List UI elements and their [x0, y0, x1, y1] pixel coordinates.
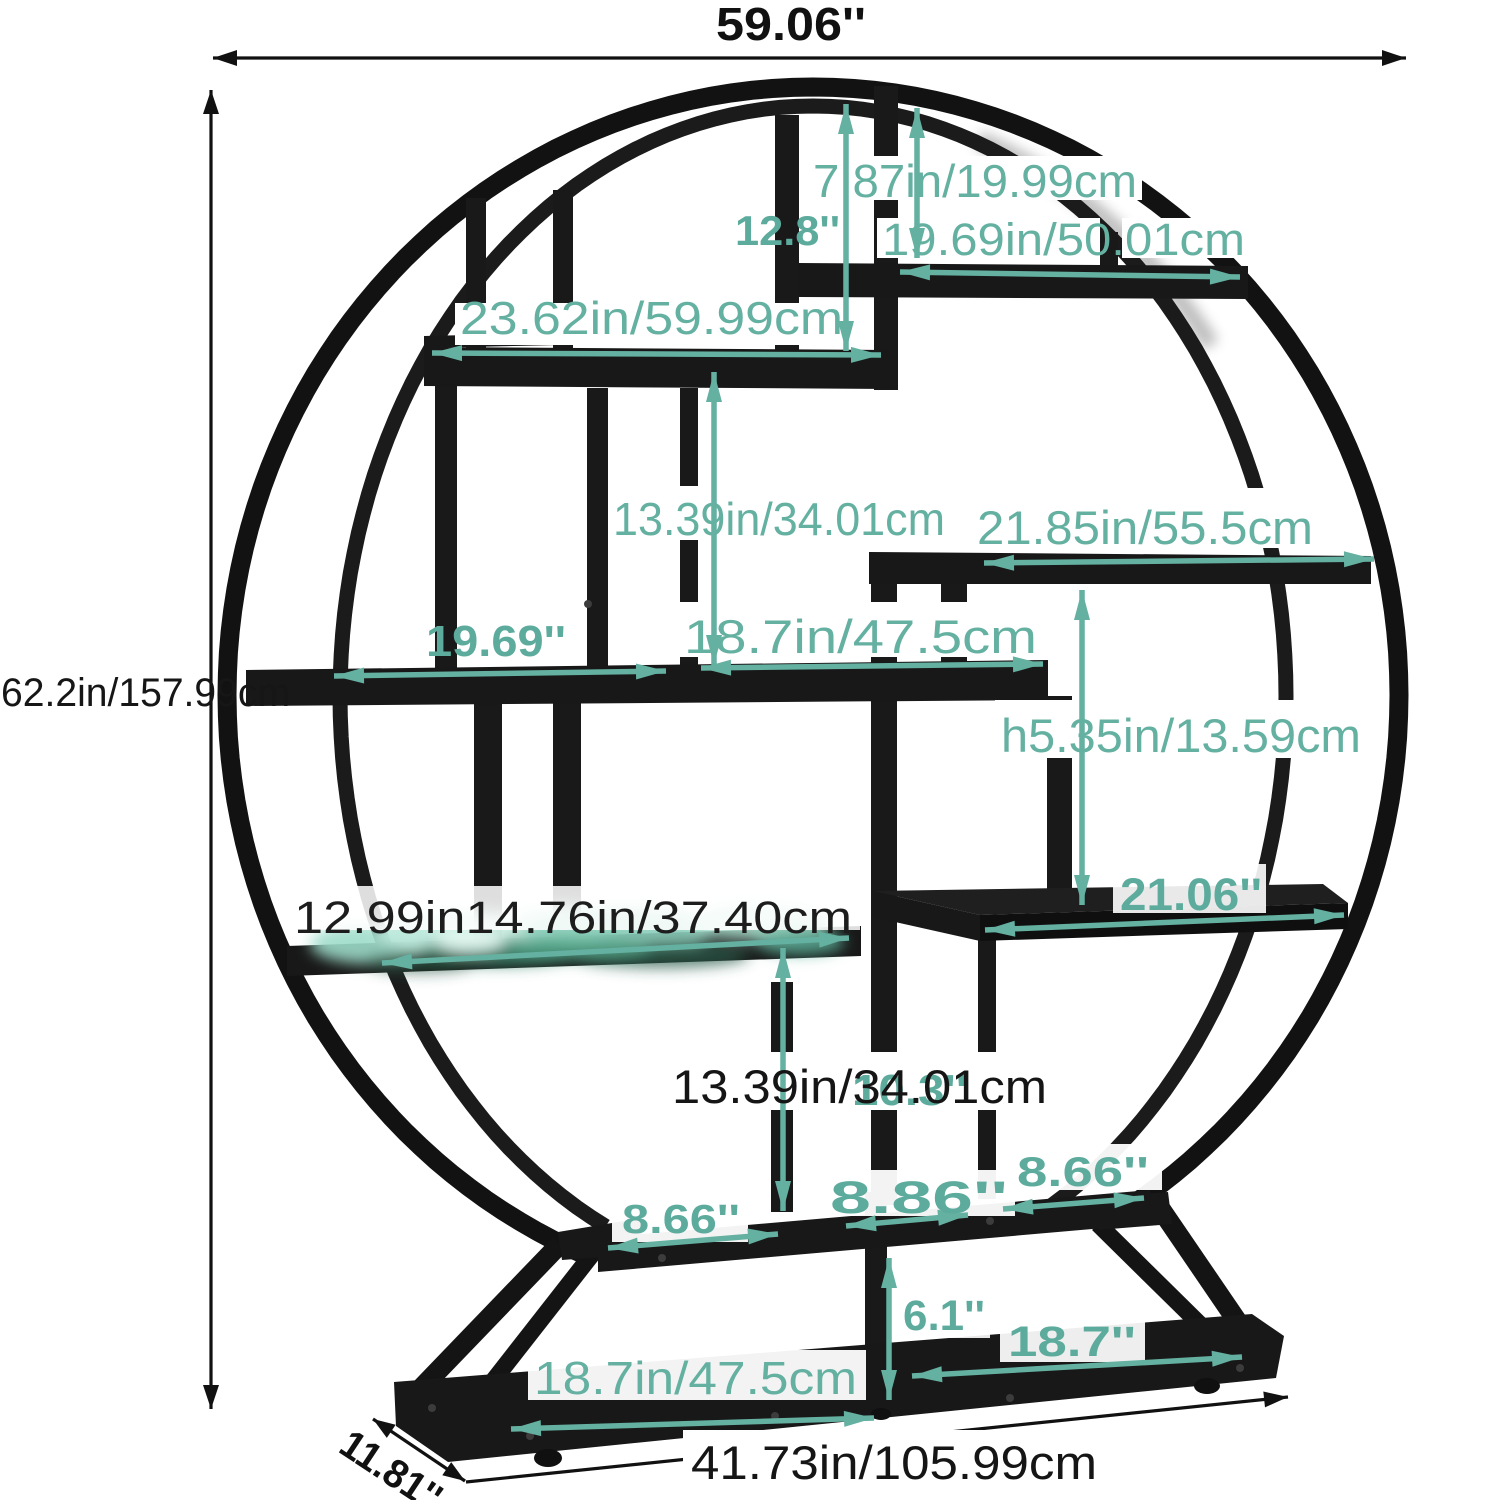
svg-text:8.66'': 8.66'' [622, 1196, 740, 1242]
svg-text:19.69'': 19.69'' [426, 617, 566, 666]
svg-text:18.7in/47.5cm: 18.7in/47.5cm [684, 610, 1037, 663]
svg-text:8.86'': 8.86'' [830, 1172, 1008, 1223]
svg-text:59.06'': 59.06'' [716, 0, 866, 50]
svg-text:7.87in/19.99cm: 7.87in/19.99cm [813, 155, 1137, 207]
svg-text:12.99in14.76in/37.40cm: 12.99in14.76in/37.40cm [294, 892, 852, 943]
svg-text:23.62in/59.99cm: 23.62in/59.99cm [460, 292, 843, 344]
svg-text:18.7in/47.5cm: 18.7in/47.5cm [534, 1352, 857, 1404]
svg-text:h5.35in/13.59cm: h5.35in/13.59cm [1001, 709, 1361, 762]
svg-text:62.2in/157.99cm: 62.2in/157.99cm [1, 671, 290, 715]
svg-text:12.8'': 12.8'' [735, 207, 840, 254]
svg-text:21.06'': 21.06'' [1120, 869, 1262, 920]
svg-text:19.69in/50.01cm: 19.69in/50.01cm [882, 214, 1245, 265]
svg-text:21.85in/55.5cm: 21.85in/55.5cm [977, 501, 1313, 554]
svg-text:18.7'': 18.7'' [1008, 1318, 1136, 1366]
svg-text:41.73in/105.99cm: 41.73in/105.99cm [691, 1436, 1097, 1489]
svg-text:13.39in/34.01cm: 13.39in/34.01cm [613, 493, 945, 545]
svg-text:6.1'': 6.1'' [903, 1292, 985, 1340]
svg-text:13.39in/34.01cm: 13.39in/34.01cm [672, 1060, 1047, 1113]
svg-text:8.66'': 8.66'' [1017, 1148, 1149, 1195]
